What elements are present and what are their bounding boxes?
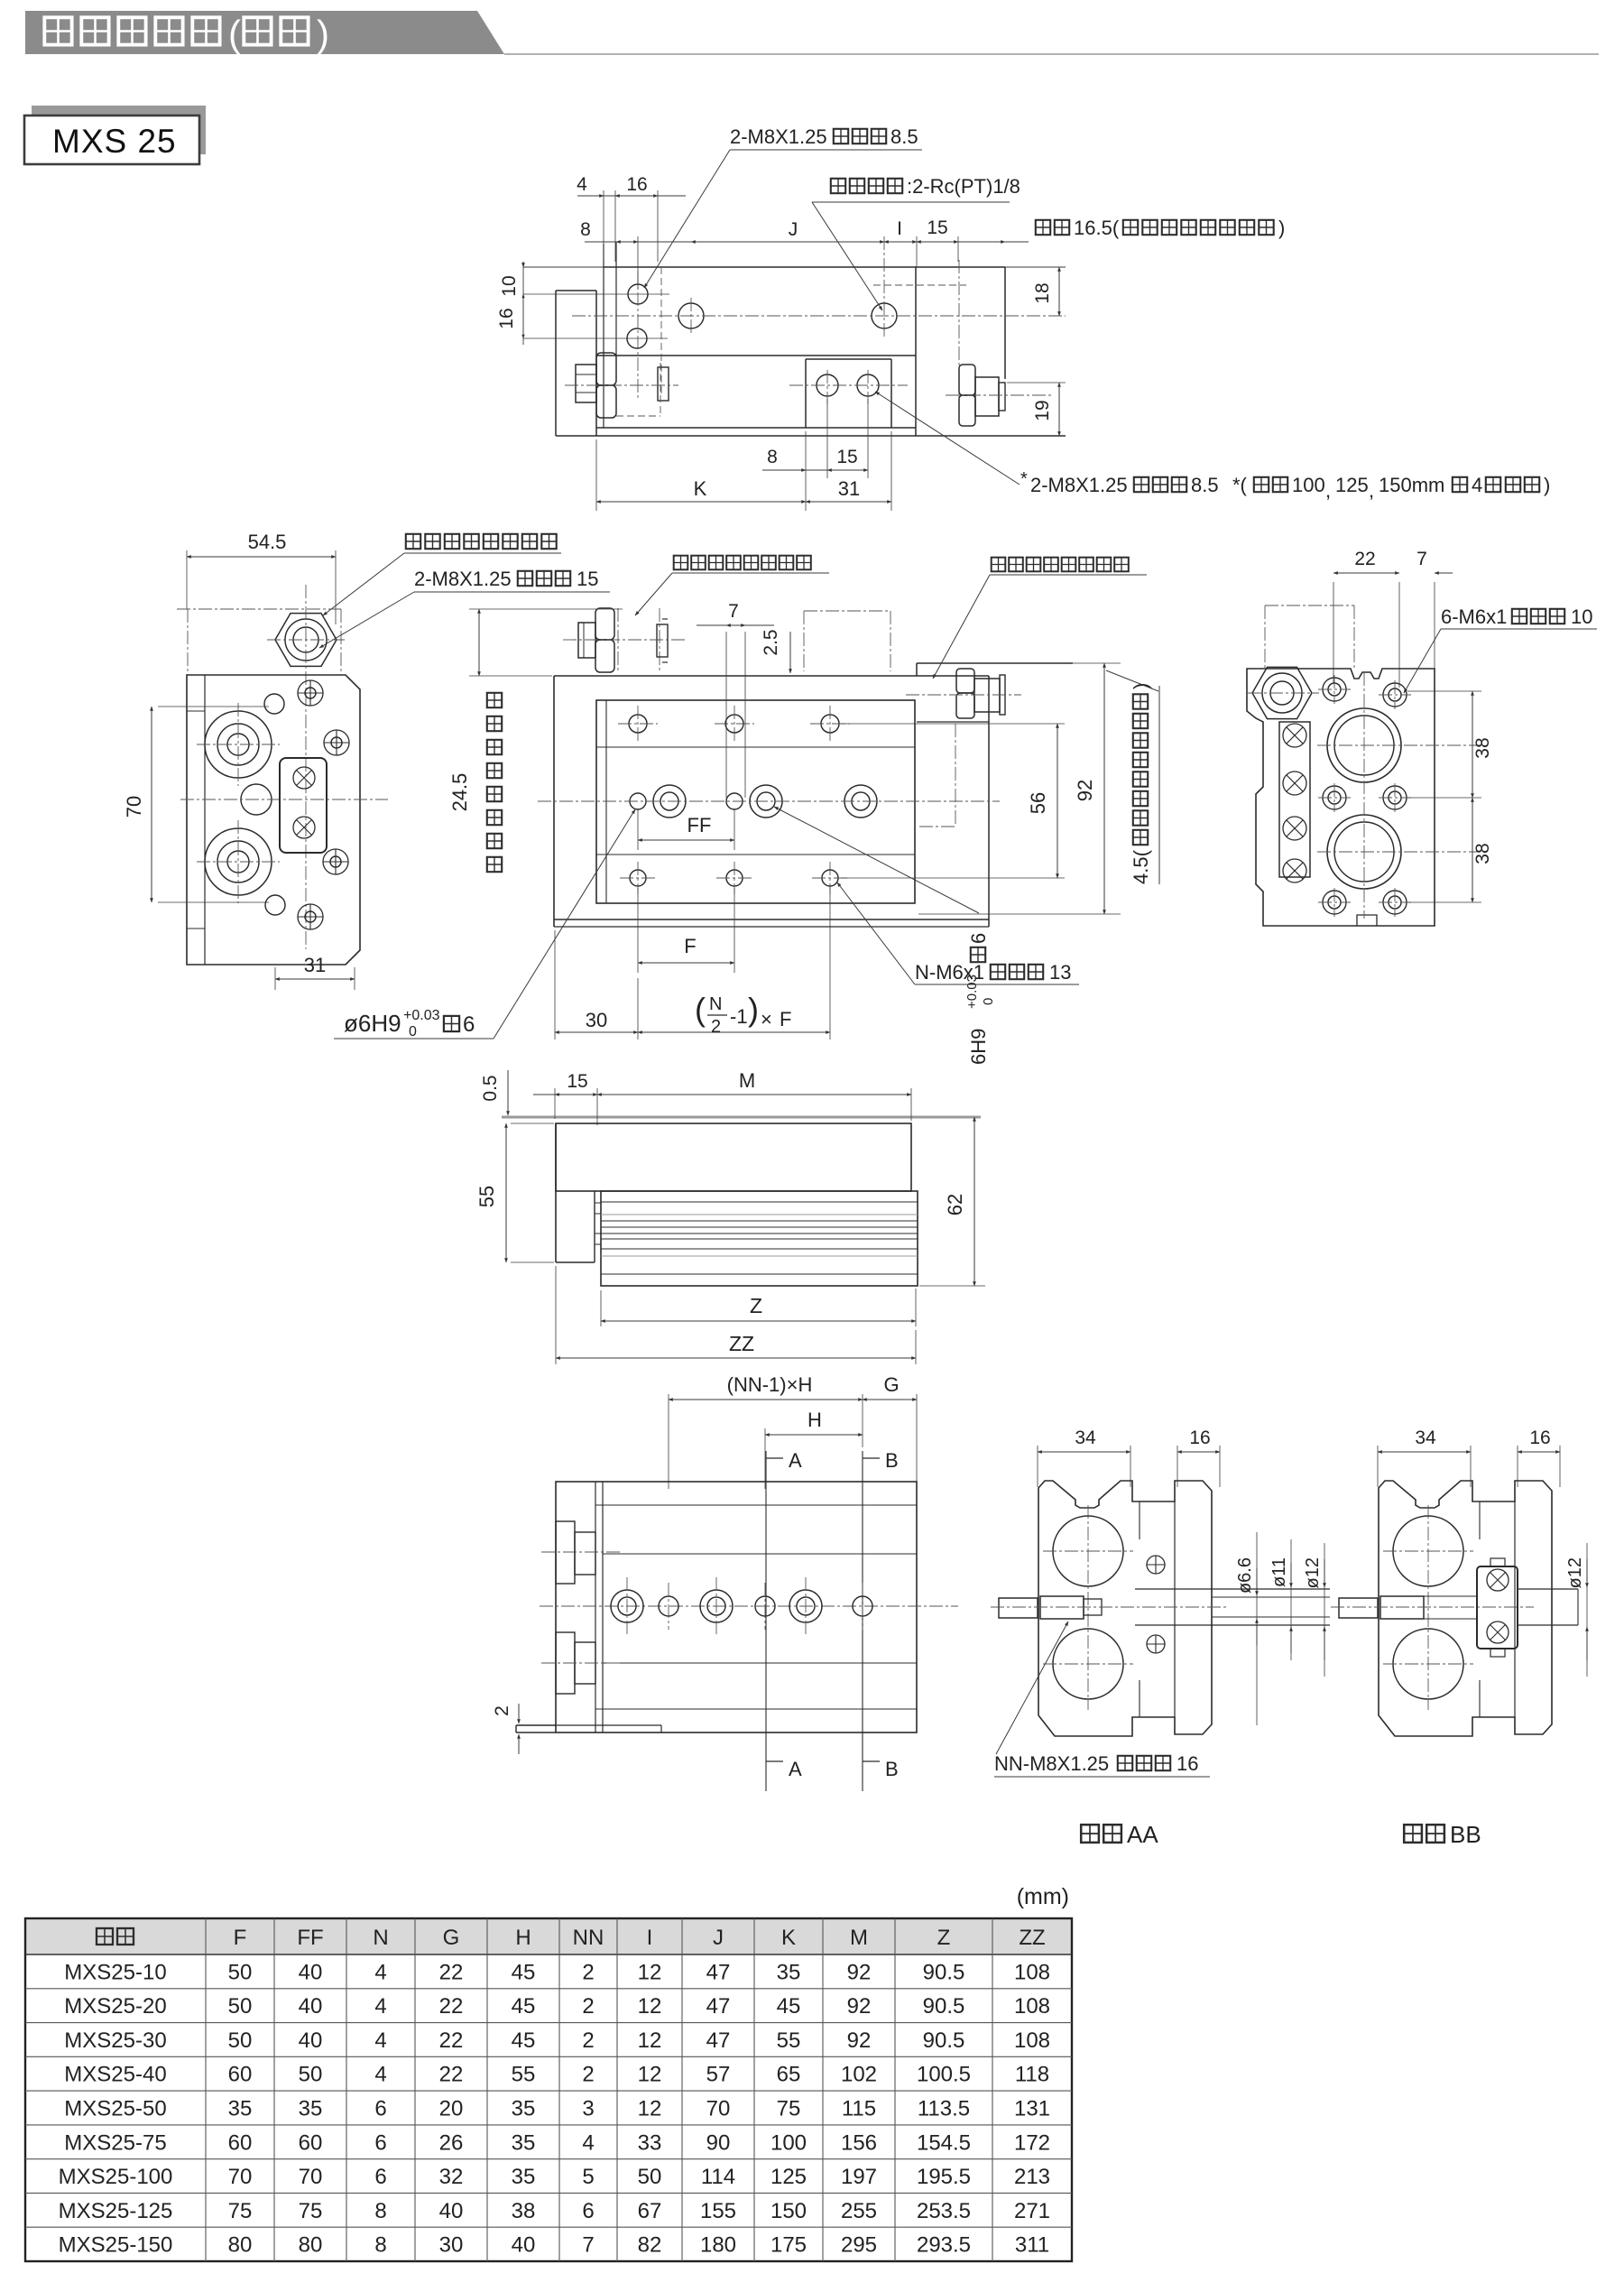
svg-text:70: 70 [228, 2165, 253, 2189]
svg-text:118: 118 [1015, 2063, 1049, 2087]
svg-text:0: 0 [981, 998, 996, 1005]
svg-text:197: 197 [841, 2165, 877, 2189]
svg-text:ZZ: ZZ [729, 1332, 754, 1355]
svg-text:12: 12 [638, 2097, 662, 2121]
svg-text:5: 5 [582, 2165, 594, 2189]
svg-text:12: 12 [638, 1994, 662, 2019]
svg-text:60: 60 [299, 2130, 323, 2155]
svg-text:90.5: 90.5 [923, 1960, 965, 1984]
svg-text:40: 40 [299, 2028, 323, 2053]
svg-text:N: N [709, 994, 722, 1014]
svg-text:40: 40 [512, 2233, 536, 2258]
svg-text:90: 90 [706, 2130, 731, 2155]
svg-text:MXS25-20: MXS25-20 [64, 1994, 166, 2019]
svg-text:75: 75 [299, 2199, 323, 2223]
svg-text:45: 45 [512, 1960, 536, 1984]
svg-text:,: , [1369, 479, 1374, 502]
svg-text:F: F [234, 1926, 247, 1950]
svg-text:90.5: 90.5 [923, 1994, 965, 2019]
svg-text:22: 22 [439, 1960, 464, 1984]
svg-text:0.5: 0.5 [480, 1075, 501, 1101]
svg-text:2: 2 [492, 1705, 512, 1716]
svg-text:38: 38 [1472, 843, 1493, 864]
svg-text:80: 80 [299, 2233, 323, 2258]
svg-text:H: H [515, 1926, 531, 1950]
svg-text:30: 30 [586, 1009, 607, 1031]
svg-text:12: 12 [638, 2028, 662, 2053]
svg-text:150mm: 150mm [1379, 474, 1444, 496]
svg-text:K: K [694, 477, 707, 500]
svg-text:MXS25-75: MXS25-75 [64, 2130, 166, 2155]
svg-text:70: 70 [706, 2097, 731, 2121]
svg-text:8.5: 8.5 [1191, 474, 1219, 496]
svg-text:55: 55 [777, 2028, 801, 2053]
svg-text:35: 35 [299, 2097, 323, 2121]
svg-text:35: 35 [512, 2097, 536, 2121]
svg-text:×: × [761, 1008, 772, 1030]
svg-text:NN-M8X1.25: NN-M8X1.25 [994, 1752, 1109, 1775]
svg-text:67: 67 [638, 2199, 662, 2223]
svg-text:15: 15 [567, 1071, 587, 1092]
svg-text:54.5: 54.5 [248, 531, 287, 553]
svg-text:40: 40 [299, 1994, 323, 2019]
svg-text:45: 45 [777, 1994, 801, 2019]
svg-text:Z: Z [750, 1294, 762, 1317]
svg-text:ø6H9: ø6H9 [344, 1010, 401, 1037]
svg-text:30: 30 [439, 2233, 464, 2258]
svg-text:+0.03: +0.03 [964, 975, 980, 1009]
svg-text:K: K [781, 1926, 796, 1950]
svg-text:12: 12 [638, 1960, 662, 1984]
svg-text:60: 60 [228, 2063, 253, 2087]
svg-text:50: 50 [228, 1994, 253, 2019]
svg-text:4: 4 [374, 1994, 386, 2019]
svg-text:26: 26 [439, 2130, 464, 2155]
svg-text:B: B [885, 1758, 899, 1780]
svg-text:32: 32 [439, 2165, 464, 2189]
svg-text:FF: FF [297, 1926, 323, 1950]
svg-text:2: 2 [582, 1994, 594, 2019]
svg-text:55: 55 [512, 2063, 536, 2087]
svg-text:155: 155 [700, 2199, 736, 2223]
svg-text:19: 19 [1032, 400, 1053, 420]
svg-text:125: 125 [770, 2165, 807, 2189]
svg-text:N: N [373, 1926, 388, 1950]
svg-text:50: 50 [228, 1960, 253, 1984]
svg-text:MXS25-125: MXS25-125 [59, 2199, 173, 2223]
svg-text:114: 114 [701, 2165, 735, 2189]
svg-text:6: 6 [374, 2130, 386, 2155]
svg-text:180: 180 [700, 2233, 736, 2258]
svg-text:15: 15 [836, 447, 857, 467]
svg-text:13: 13 [1049, 961, 1071, 984]
svg-text:MXS25-100: MXS25-100 [59, 2165, 173, 2189]
svg-text:102: 102 [841, 2063, 877, 2087]
svg-text:90.5: 90.5 [923, 2028, 965, 2053]
svg-text:16: 16 [626, 174, 647, 195]
svg-text:311: 311 [1015, 2233, 1049, 2258]
svg-text:100: 100 [1292, 474, 1325, 496]
svg-text:22: 22 [439, 2063, 464, 2087]
svg-text:2: 2 [582, 1960, 594, 1984]
svg-text:BB: BB [1450, 1821, 1481, 1848]
svg-text:-1: -1 [730, 1005, 748, 1028]
svg-text:22: 22 [1354, 549, 1375, 569]
svg-text:35: 35 [512, 2165, 536, 2189]
svg-text:175: 175 [770, 2233, 807, 2258]
svg-text:35: 35 [228, 2097, 253, 2121]
svg-text:): ) [317, 13, 329, 55]
svg-text:154.5: 154.5 [917, 2130, 971, 2155]
svg-text:2-M8X1.25: 2-M8X1.25 [414, 568, 512, 590]
svg-text:295: 295 [841, 2233, 877, 2258]
svg-text:56: 56 [1027, 792, 1049, 814]
svg-text:62: 62 [944, 1194, 966, 1215]
svg-text:150: 150 [770, 2199, 807, 2223]
svg-text:131: 131 [1014, 2097, 1050, 2121]
svg-text:G: G [443, 1926, 460, 1950]
svg-text:): ) [1544, 474, 1550, 496]
svg-text:82: 82 [638, 2233, 662, 2258]
svg-text:16: 16 [1176, 1752, 1198, 1775]
svg-text:A: A [789, 1449, 802, 1472]
svg-text:45: 45 [512, 2028, 536, 2053]
svg-text:6: 6 [463, 1012, 475, 1037]
svg-text:FF: FF [687, 814, 712, 836]
svg-text:7: 7 [582, 2233, 594, 2258]
svg-text:4: 4 [374, 2063, 386, 2087]
svg-text:253.5: 253.5 [917, 2199, 971, 2223]
svg-text:ø6.6: ø6.6 [1235, 1557, 1255, 1594]
svg-text:8: 8 [767, 447, 778, 467]
svg-text:I: I [897, 218, 902, 239]
svg-text:213: 213 [1014, 2165, 1050, 2189]
svg-text:2-M8X1.25: 2-M8X1.25 [1030, 474, 1128, 496]
svg-text:ø12: ø12 [1565, 1557, 1585, 1588]
svg-text:33: 33 [638, 2130, 662, 2155]
svg-text:47: 47 [706, 1960, 731, 1984]
svg-text:7: 7 [728, 601, 739, 622]
svg-text:12: 12 [638, 2063, 662, 2087]
svg-text:6-M6x1: 6-M6x1 [1441, 605, 1507, 628]
svg-text:ø11: ø11 [1269, 1557, 1289, 1587]
svg-text:55: 55 [475, 1186, 498, 1207]
svg-text:50: 50 [228, 2028, 253, 2053]
svg-text:(NN-1)×H: (NN-1)×H [727, 1373, 813, 1396]
svg-text:4: 4 [374, 1960, 386, 1984]
svg-text:172: 172 [1014, 2130, 1050, 2155]
svg-text:4: 4 [582, 2130, 594, 2155]
svg-text:6: 6 [374, 2097, 386, 2121]
svg-text:2: 2 [582, 2028, 594, 2053]
svg-text:MXS25-30: MXS25-30 [64, 2028, 166, 2053]
svg-text:A: A [789, 1758, 802, 1780]
svg-text:4.5(: 4.5( [1130, 849, 1152, 884]
svg-text:MXS25-40: MXS25-40 [64, 2063, 166, 2087]
svg-text:75: 75 [228, 2199, 253, 2223]
svg-text:6H9: 6H9 [967, 1029, 990, 1065]
svg-text:H: H [807, 1409, 822, 1431]
svg-text:40: 40 [439, 2199, 464, 2223]
svg-text:34: 34 [1415, 1428, 1436, 1448]
svg-text:J: J [713, 1926, 724, 1950]
svg-text:*(: *( [1232, 474, 1248, 496]
svg-text:(: ( [695, 991, 706, 1028]
svg-text:24.5: 24.5 [448, 773, 471, 812]
svg-text:47: 47 [706, 1994, 731, 2019]
svg-text:0: 0 [409, 1024, 417, 1039]
svg-text:M: M [739, 1069, 755, 1092]
svg-text:15: 15 [927, 217, 947, 238]
svg-text:7: 7 [1416, 549, 1427, 569]
svg-text:B: B [885, 1449, 899, 1472]
svg-text:100.5: 100.5 [917, 2063, 971, 2087]
svg-text:31: 31 [838, 477, 860, 500]
svg-text:16.5(: 16.5( [1074, 217, 1120, 239]
svg-text:115: 115 [842, 2097, 876, 2121]
svg-text:MXS25-150: MXS25-150 [59, 2233, 173, 2258]
svg-text:G: G [883, 1373, 899, 1396]
svg-text:113.5: 113.5 [918, 2097, 970, 2121]
svg-text:2-M8X1.25: 2-M8X1.25 [730, 125, 827, 148]
svg-text:38: 38 [1472, 737, 1493, 758]
svg-text:2: 2 [711, 1017, 721, 1037]
svg-text:108: 108 [1014, 1994, 1050, 2019]
svg-text:35: 35 [777, 1960, 801, 1984]
svg-text:80: 80 [228, 2233, 253, 2258]
svg-text:45: 45 [512, 1994, 536, 2019]
svg-text:(mm): (mm) [1017, 1884, 1069, 1909]
svg-text:22: 22 [439, 2028, 464, 2053]
svg-text:70: 70 [299, 2165, 323, 2189]
svg-text:92: 92 [847, 1994, 872, 2019]
svg-text:2: 2 [582, 2063, 594, 2087]
svg-text:60: 60 [228, 2130, 253, 2155]
svg-text:4: 4 [1472, 474, 1482, 496]
svg-text:3: 3 [582, 2097, 594, 2121]
svg-text:J: J [789, 219, 798, 240]
svg-text::2-Rc(PT)1/8: :2-Rc(PT)1/8 [907, 175, 1020, 198]
svg-text:ZZ: ZZ [1019, 1926, 1045, 1950]
svg-text:ø12: ø12 [1303, 1557, 1323, 1588]
svg-text:10: 10 [1571, 605, 1592, 628]
svg-text:8.5: 8.5 [890, 125, 918, 148]
svg-text:255: 255 [841, 2199, 877, 2223]
svg-text:125: 125 [1335, 474, 1369, 496]
svg-text:38: 38 [512, 2199, 536, 2223]
svg-text:35: 35 [512, 2130, 536, 2155]
svg-text:108: 108 [1014, 1960, 1050, 1984]
svg-text:65: 65 [777, 2063, 801, 2087]
svg-text:M: M [850, 1926, 868, 1950]
svg-text:16: 16 [1529, 1428, 1550, 1448]
svg-text:92: 92 [847, 2028, 872, 2053]
svg-text:18: 18 [1032, 282, 1053, 303]
svg-text:10: 10 [499, 275, 520, 296]
svg-text:AA: AA [1127, 1821, 1158, 1848]
svg-text:(: ( [228, 13, 241, 55]
svg-text:50: 50 [638, 2165, 662, 2189]
svg-text:293.5: 293.5 [917, 2233, 971, 2258]
svg-text:4: 4 [577, 174, 587, 195]
svg-text:92: 92 [847, 1960, 872, 1984]
svg-text:100: 100 [770, 2130, 807, 2155]
svg-text:4: 4 [374, 2028, 386, 2053]
svg-text:47: 47 [706, 2028, 731, 2053]
svg-text:2.5: 2.5 [761, 629, 781, 655]
svg-text:6: 6 [582, 2199, 594, 2223]
svg-text:16: 16 [496, 308, 517, 328]
svg-text:NN: NN [573, 1926, 604, 1950]
svg-text:6: 6 [374, 2165, 386, 2189]
svg-text:,: , [1325, 479, 1331, 502]
svg-text:+0.03: +0.03 [403, 1008, 440, 1023]
svg-text:16: 16 [1189, 1428, 1210, 1448]
svg-text:): ) [748, 991, 759, 1028]
svg-text:Z: Z [937, 1926, 951, 1950]
svg-text:271: 271 [1014, 2199, 1050, 2223]
svg-text:*: * [1020, 469, 1028, 489]
svg-text:70: 70 [123, 796, 145, 818]
svg-text:75: 75 [777, 2097, 801, 2121]
svg-text:195.5: 195.5 [917, 2165, 971, 2189]
svg-text:57: 57 [706, 2063, 731, 2087]
svg-text:MXS 25: MXS 25 [52, 123, 177, 160]
svg-text:6: 6 [967, 933, 990, 944]
svg-text:MXS25-50: MXS25-50 [64, 2097, 166, 2121]
svg-text:31: 31 [304, 954, 326, 976]
svg-text:8: 8 [374, 2199, 386, 2223]
svg-text:F: F [684, 935, 696, 957]
svg-text:): ) [1278, 217, 1285, 239]
svg-text:40: 40 [299, 1960, 323, 1984]
svg-text:92: 92 [1074, 780, 1096, 801]
svg-text:F: F [780, 1008, 791, 1030]
svg-text:8: 8 [580, 219, 591, 240]
svg-text:156: 156 [841, 2130, 877, 2155]
svg-text:8: 8 [374, 2233, 386, 2258]
svg-text:15: 15 [577, 568, 598, 590]
svg-text:50: 50 [299, 2063, 323, 2087]
svg-text:20: 20 [439, 2097, 464, 2121]
svg-text:22: 22 [439, 1994, 464, 2019]
svg-text:108: 108 [1014, 2028, 1050, 2053]
svg-text:MXS25-10: MXS25-10 [64, 1960, 166, 1984]
svg-text:34: 34 [1075, 1428, 1096, 1448]
svg-text:I: I [647, 1926, 653, 1950]
